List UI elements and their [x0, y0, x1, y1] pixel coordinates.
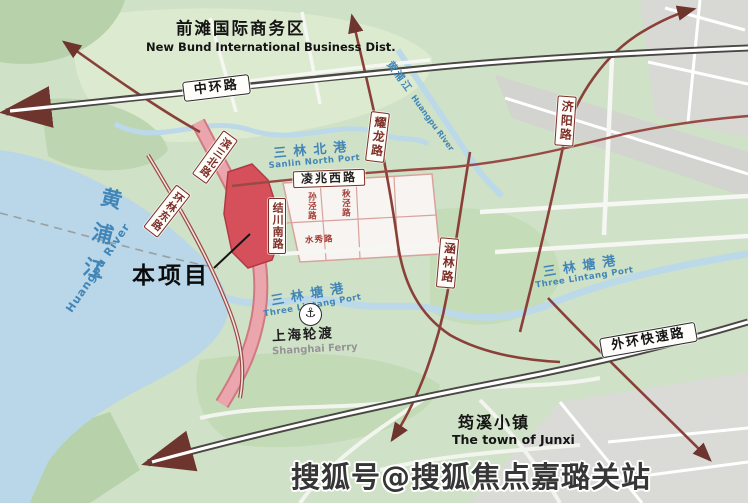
- project-label: 本项目: [132, 264, 210, 289]
- ferry-label-zh: 上海轮渡: [272, 326, 335, 344]
- junxi-label-en: The town of Junxi: [452, 433, 575, 447]
- road-label-lingzhao-xi: 凌兆西路: [293, 169, 366, 189]
- road-label-jiyang: 济阳路: [554, 95, 577, 146]
- anchor-icon: ⚓: [299, 303, 322, 326]
- street-label-sunjing: 孙泾路: [306, 192, 315, 221]
- watermark-text: 搜狐号@搜狐焦点嘉璐关站: [291, 462, 651, 494]
- road-label-jiechuan-nan: 结川南路: [268, 198, 286, 254]
- location-map: 前滩国际商务区 New Bund International Business …: [0, 0, 748, 503]
- street-label-shuixiu: 水秀路: [305, 235, 334, 246]
- newbund-label-zh: 前滩国际商务区: [176, 20, 306, 38]
- junxi-label-zh: 筠溪小镇: [458, 414, 530, 432]
- newbund-label-en: New Bund International Business Dist.: [146, 41, 396, 54]
- street-label-qiujing: 秋泾路: [340, 189, 349, 218]
